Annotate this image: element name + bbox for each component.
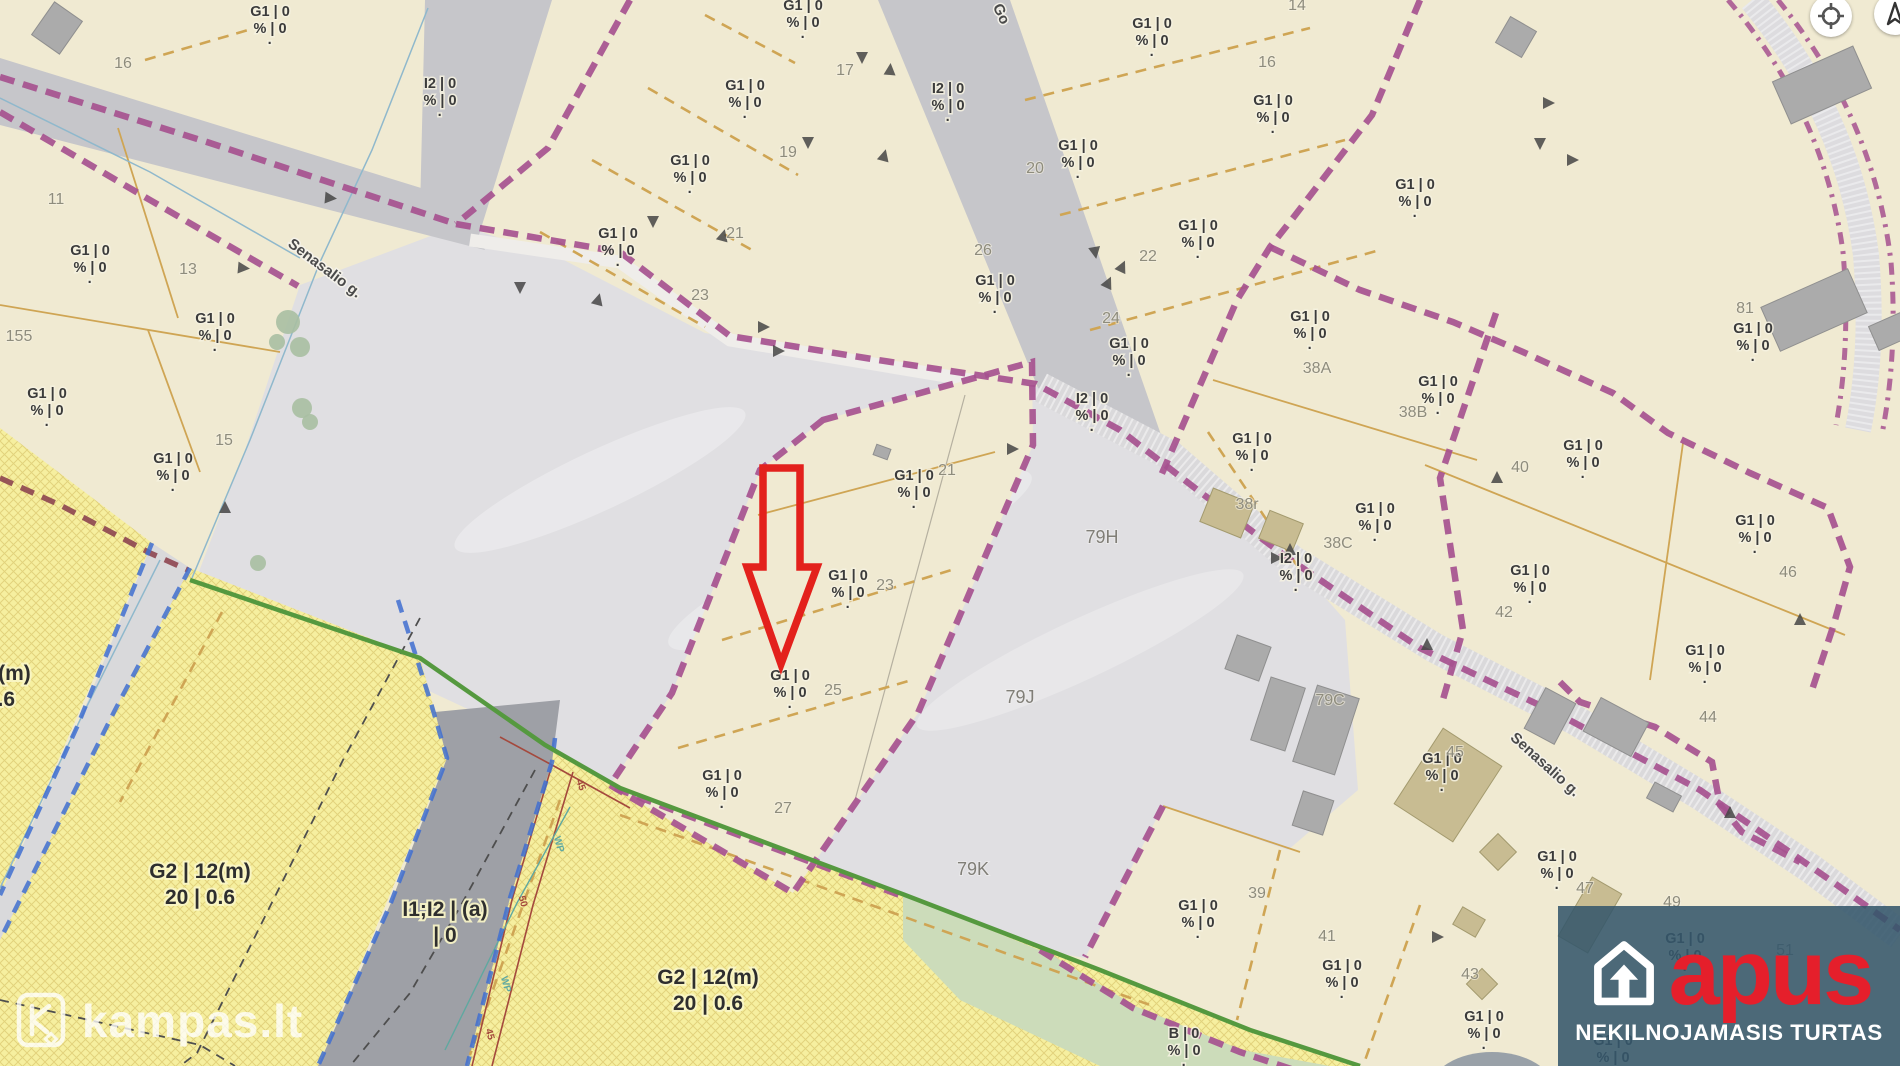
parcel-number: 42: [1495, 604, 1513, 621]
parcel-number: 23: [876, 577, 894, 594]
parcel-number: 16: [114, 55, 132, 72]
parcel-number: 47: [1576, 880, 1594, 897]
territory-code: 79J: [1005, 687, 1034, 707]
parcel-number: 26: [974, 242, 992, 259]
parcel-number: 19: [779, 144, 797, 161]
tree: [276, 310, 300, 334]
tree: [290, 337, 310, 357]
agency-overlay: apus NEKILNOJAMASIS TURTAS: [1558, 906, 1900, 1066]
parcel-number: 20: [1026, 160, 1044, 177]
apus-house-icon: [1587, 932, 1661, 1010]
tree: [302, 414, 318, 430]
parcel-number: 81: [1736, 300, 1754, 317]
parcel-number: 39: [1248, 885, 1266, 902]
parcel-number: 44: [1699, 709, 1717, 726]
parcel-number: 38A: [1303, 360, 1332, 377]
parcel-number: 41: [1318, 928, 1336, 945]
parcel-number: 15: [215, 432, 233, 449]
agency-name: apus: [1669, 938, 1872, 1010]
parcel-number: 21: [726, 225, 744, 242]
parcel-number: 43: [1461, 966, 1479, 983]
tree: [269, 334, 285, 350]
parcel-number: 79C: [1315, 692, 1344, 709]
territory-code: 79K: [957, 859, 989, 879]
parcel-number: 16: [1258, 54, 1276, 71]
parcel-number: 23: [691, 287, 709, 304]
parcel-number: 21: [938, 462, 956, 479]
territory-code: 79H: [1085, 527, 1118, 547]
parcel-number: 38B: [1399, 404, 1427, 421]
parcel-number: 155: [6, 328, 33, 345]
parcel-number: 11: [48, 191, 65, 208]
parcel-number: 27: [774, 800, 792, 817]
parcel-number: 14: [1288, 0, 1306, 14]
tree: [250, 555, 266, 571]
parcel-number: 46: [1779, 564, 1797, 581]
parcel-number: 25: [824, 682, 842, 699]
north-arrow-icon: [1880, 0, 1900, 29]
parcel-number: 17: [836, 62, 854, 79]
parcel-number: 22: [1139, 248, 1157, 265]
parcel-number: 24: [1102, 310, 1120, 327]
parcel-number: 40: [1511, 459, 1529, 476]
parcel-number: 45: [1446, 744, 1464, 761]
parcel-number: 13: [179, 261, 197, 278]
parcel-number: 38C: [1323, 535, 1352, 552]
crosshair-icon: [1816, 1, 1846, 31]
agency-tagline: NEKILNOJAMASIS TURTAS: [1575, 1020, 1883, 1046]
parcel-number: 38r: [1235, 496, 1259, 513]
map-viewport[interactable]: G1 | 0% | 0·I2 | 0% | 0·G1 | 0% | 0·G1 |…: [0, 0, 1900, 1066]
